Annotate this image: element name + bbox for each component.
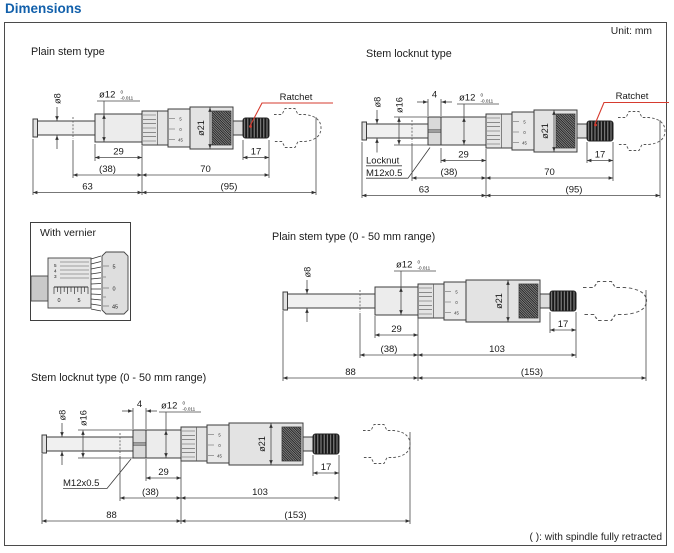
thimble-digit: 0: [112, 287, 115, 293]
dimension-values: 29 17 (38) 70 63 (95): [419, 150, 606, 196]
locknut-label-1: Locknut: [366, 156, 400, 167]
dia12-tol-upper: 0: [121, 90, 124, 95]
dia12-tol-lower: -0.011: [121, 96, 134, 101]
thimble-digit: 5: [112, 265, 115, 271]
thimble-digit: 45: [112, 305, 118, 311]
dim-17: 17: [595, 150, 606, 161]
dia12-label: ø12: [396, 260, 412, 271]
dim-88: 88: [106, 510, 117, 521]
catalog-page: Dimensions Unit: mm Plain stem type Stem…: [0, 0, 674, 553]
dim-38: (38): [142, 487, 159, 498]
technical-drawings: 5 0 45 ø21: [0, 0, 674, 553]
dia8-label: ø8: [303, 267, 313, 278]
width4-dimension: 4: [122, 399, 157, 429]
dimension-values: 29 17 (38) 103 88 (153): [106, 462, 331, 521]
stem: [367, 124, 429, 138]
locknut-label: M12x0.5: [63, 478, 99, 489]
dim-38: (38): [99, 164, 116, 175]
dia12-tol-upper: 0: [418, 260, 421, 265]
dia12-tol-upper: 0: [481, 93, 484, 98]
thimble-edge-ticks: [91, 256, 101, 311]
vernier-rod: [31, 276, 48, 301]
collar: [441, 117, 486, 145]
stem: [38, 121, 96, 135]
dia16-label: ø16: [79, 410, 89, 426]
dia8-label: ø8: [373, 97, 383, 108]
dim-63: 63: [82, 182, 93, 193]
scale-digit-0: 0: [57, 298, 60, 304]
dia8-label: ø8: [53, 93, 63, 104]
dim-38: (38): [381, 344, 398, 355]
dia12-tol-lower: -0.011: [418, 266, 431, 271]
width4-dimension: 4: [417, 90, 452, 117]
dim-17: 17: [321, 462, 332, 473]
dim-153: (153): [284, 510, 306, 521]
dim-88: 88: [345, 367, 356, 378]
dim-70: 70: [200, 164, 211, 175]
ratchet-label: Ratchet: [280, 92, 313, 103]
dia12-tol-upper: 0: [183, 401, 186, 406]
vernier-digit: 3: [54, 274, 57, 279]
dim-29: 29: [458, 150, 469, 161]
dim-38: (38): [441, 167, 458, 178]
dim-95: (95): [566, 185, 583, 196]
dia12-label: ø12: [99, 90, 115, 101]
locknut-callout: Locknut M12x0.5: [366, 148, 430, 180]
drawing-stem-locknut-50: ø8 ø16 4 ø12 0 -0.011 M12x0.5: [42, 399, 410, 524]
dia12-label: ø12: [161, 401, 177, 412]
dim-95: (95): [221, 182, 238, 193]
vernier-digit: 4: [54, 269, 57, 274]
dia12-tol-lower: -0.011: [481, 99, 494, 104]
locknut: [133, 430, 146, 458]
dimension-values: 29 17 (38) 70 63 (95): [82, 147, 261, 193]
dim-29: 29: [391, 324, 402, 335]
collar: [95, 114, 142, 142]
locknut-label-2: M12x0.5: [366, 168, 402, 179]
dim-70: 70: [544, 167, 555, 178]
dim-63: 63: [419, 185, 430, 196]
dia12-label: ø12: [459, 93, 475, 104]
collar: [146, 430, 181, 458]
drawing-stem-locknut: Ratchet ø8 ø16 4 ø12 0: [362, 90, 669, 199]
dim-103: 103: [489, 344, 505, 355]
dim-103: 103: [252, 487, 268, 498]
drawing-plain-stem-50: ø8 ø12 0 -0.011 29 17 (38): [283, 260, 646, 382]
collar: [375, 287, 418, 315]
locknut-callout: M12x0.5: [63, 459, 131, 489]
dim-4: 4: [432, 90, 437, 101]
dia12-tol-lower: -0.011: [183, 407, 196, 412]
drawing-plain-stem: Ratchet ø8 ø12 0 -0.011: [33, 90, 333, 196]
dia16-label: ø16: [395, 97, 405, 113]
vernier-digit: 5: [54, 263, 57, 268]
dim-29: 29: [158, 467, 169, 478]
locknut: [428, 117, 441, 145]
ratchet-label: Ratchet: [616, 91, 649, 102]
dim-17: 17: [558, 319, 569, 330]
scale-digit-5: 5: [77, 298, 80, 304]
dia8-label: ø8: [58, 410, 68, 421]
dim-29: 29: [113, 147, 124, 158]
dim-4: 4: [137, 399, 142, 410]
dim-17: 17: [251, 147, 262, 158]
vernier-inset-drawing: 5 4 3 0 5 5 0 45: [31, 252, 128, 314]
dimension-values: 29 17 (38) 103 88 (153): [345, 319, 568, 378]
stem: [288, 294, 376, 308]
dim-153: (153): [521, 367, 543, 378]
